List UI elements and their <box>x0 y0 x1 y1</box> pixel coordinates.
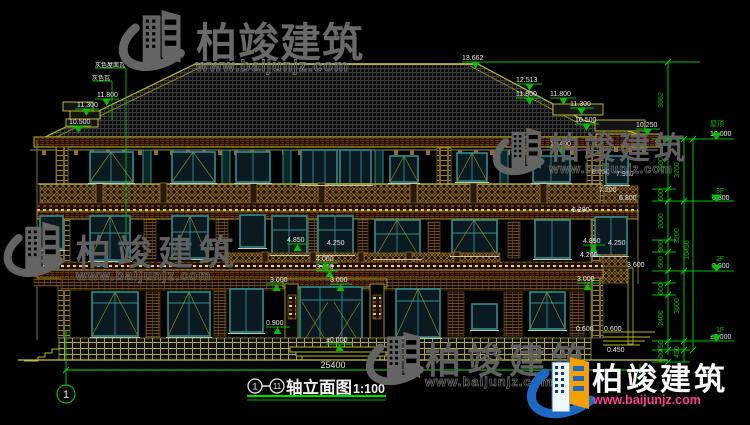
svg-text:3662: 3662 <box>658 92 665 108</box>
svg-text:4.200: 4.200 <box>580 252 598 259</box>
svg-text:0.600: 0.600 <box>576 326 594 333</box>
svg-text:2000: 2000 <box>658 213 665 229</box>
svg-text:3.600: 3.600 <box>627 262 645 269</box>
svg-text:11: 11 <box>273 382 282 391</box>
svg-text:屋顶: 屋顶 <box>710 120 724 128</box>
svg-text:轴立面图: 轴立面图 <box>286 377 352 397</box>
svg-text:7.200: 7.200 <box>599 187 617 194</box>
svg-text:3.000: 3.000 <box>270 277 288 284</box>
svg-text:4.250: 4.250 <box>608 240 626 247</box>
svg-text:6.200: 6.200 <box>572 207 590 214</box>
svg-text:3200: 3200 <box>674 228 681 244</box>
svg-text:10.250: 10.250 <box>636 122 658 129</box>
svg-text:4.250: 4.250 <box>327 240 345 247</box>
svg-text:1: 1 <box>252 382 257 392</box>
svg-text:600: 600 <box>658 283 665 295</box>
svg-text:柏竣建筑: 柏竣建筑 <box>592 362 728 397</box>
svg-text:3.000: 3.000 <box>330 277 348 284</box>
svg-text:13.662: 13.662 <box>462 55 484 62</box>
svg-text:www.baijunjz.com: www.baijunjz.com <box>75 268 212 283</box>
svg-text:600: 600 <box>658 256 665 268</box>
svg-text:0.450: 0.450 <box>607 347 625 354</box>
svg-text:1F: 1F <box>716 327 724 334</box>
svg-text:450: 450 <box>674 346 681 358</box>
svg-text:600: 600 <box>658 189 665 201</box>
svg-text:柏竣建筑: 柏竣建筑 <box>549 131 689 166</box>
svg-text:11.800: 11.800 <box>550 91 571 98</box>
svg-text:11.300: 11.300 <box>570 101 591 108</box>
svg-text:www.baijunjz.com: www.baijunjz.com <box>592 393 701 407</box>
svg-text:11.300: 11.300 <box>77 102 98 109</box>
svg-text:12.513: 12.513 <box>516 77 538 84</box>
svg-text:3600: 3600 <box>674 298 681 314</box>
svg-text:0.900: 0.900 <box>266 320 284 327</box>
svg-text:450: 450 <box>658 340 665 352</box>
svg-text:±0.000: ±0.000 <box>326 337 347 344</box>
svg-text:柏竣建筑: 柏竣建筑 <box>76 233 240 273</box>
svg-text:3.000: 3.000 <box>577 276 595 283</box>
svg-text:11.800: 11.800 <box>516 91 537 98</box>
svg-text:4.850: 4.850 <box>583 238 601 245</box>
svg-text:900: 900 <box>658 240 665 252</box>
svg-text:2F: 2F <box>716 256 724 263</box>
svg-text:10450: 10450 <box>684 240 691 260</box>
svg-text:4.850: 4.850 <box>287 237 305 244</box>
svg-text:25400: 25400 <box>320 360 345 370</box>
svg-text:2400: 2400 <box>658 310 665 326</box>
svg-text:10.500: 10.500 <box>575 117 597 124</box>
svg-text:1:100: 1:100 <box>353 382 385 396</box>
svg-text:www.baijunjz.com: www.baijunjz.com <box>195 58 349 75</box>
svg-text:www.baijunjz.com: www.baijunjz.com <box>548 162 673 176</box>
svg-text:3F: 3F <box>716 188 724 195</box>
svg-text:1: 1 <box>63 389 69 401</box>
svg-text:6.800: 6.800 <box>619 195 637 202</box>
svg-text:0.600: 0.600 <box>604 326 622 333</box>
svg-text:10.500: 10.500 <box>69 119 91 126</box>
svg-text:600: 600 <box>658 350 665 362</box>
svg-text:4.000: 4.000 <box>316 256 334 263</box>
svg-text:11.800: 11.800 <box>97 92 118 99</box>
